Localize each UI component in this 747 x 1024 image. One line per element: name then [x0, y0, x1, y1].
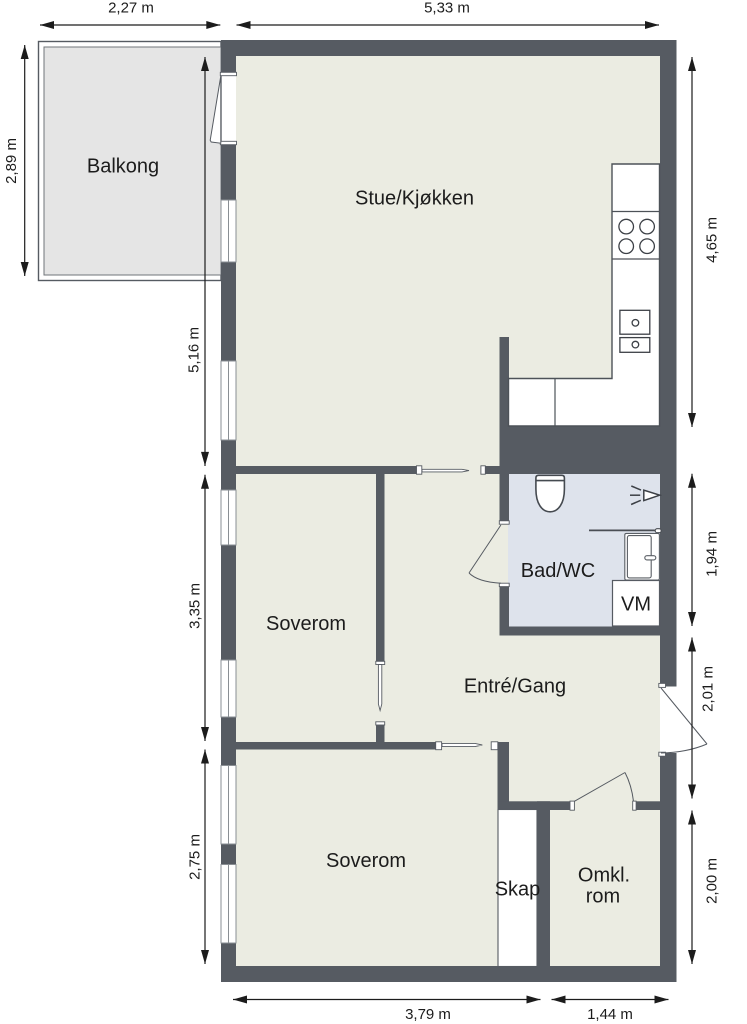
svg-text:Entré/Gang: Entré/Gang: [464, 676, 566, 698]
svg-text:2,27 m: 2,27 m: [108, 0, 154, 17]
svg-text:2,89 m: 2,89 m: [3, 138, 20, 184]
svg-text:5,16 m: 5,16 m: [185, 327, 202, 373]
svg-text:Stue/Kjøkken: Stue/Kjøkken: [355, 188, 474, 210]
svg-text:Bad/WC: Bad/WC: [521, 560, 595, 582]
svg-text:2,75 m: 2,75 m: [186, 834, 203, 880]
svg-text:Balkong: Balkong: [87, 156, 159, 178]
svg-text:4,65 m: 4,65 m: [703, 217, 720, 263]
svg-text:3,79 m: 3,79 m: [405, 1006, 451, 1023]
svg-text:Omkl.: Omkl.: [578, 865, 630, 887]
svg-text:2,01 m: 2,01 m: [699, 666, 716, 712]
svg-text:VM: VM: [621, 594, 651, 616]
svg-text:Soverom: Soverom: [266, 613, 346, 635]
svg-text:rom: rom: [586, 886, 620, 908]
svg-text:1,44 m: 1,44 m: [587, 1006, 633, 1023]
svg-text:5,33 m: 5,33 m: [424, 0, 470, 17]
svg-text:Skap: Skap: [495, 879, 541, 901]
svg-text:3,35 m: 3,35 m: [186, 583, 203, 629]
svg-text:2,00 m: 2,00 m: [703, 858, 720, 904]
svg-text:1,94 m: 1,94 m: [703, 531, 720, 577]
svg-text:Soverom: Soverom: [326, 850, 406, 872]
